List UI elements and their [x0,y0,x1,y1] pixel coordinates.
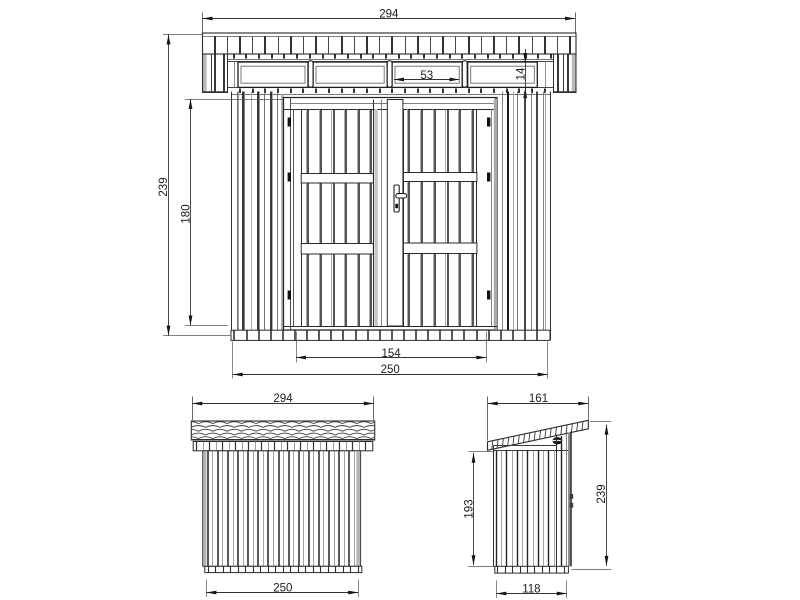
svg-text:53: 53 [420,70,433,82]
svg-text:180: 180 [180,204,192,223]
svg-text:154: 154 [382,348,402,360]
svg-text:14: 14 [515,67,527,80]
svg-text:250: 250 [381,364,400,376]
svg-text:161: 161 [529,393,548,405]
svg-text:239: 239 [596,484,608,503]
svg-text:294: 294 [379,8,399,20]
svg-text:294: 294 [273,393,293,405]
svg-text:118: 118 [522,584,540,596]
svg-text:239: 239 [158,177,170,196]
svg-text:193: 193 [464,499,476,518]
svg-text:250: 250 [273,583,292,595]
